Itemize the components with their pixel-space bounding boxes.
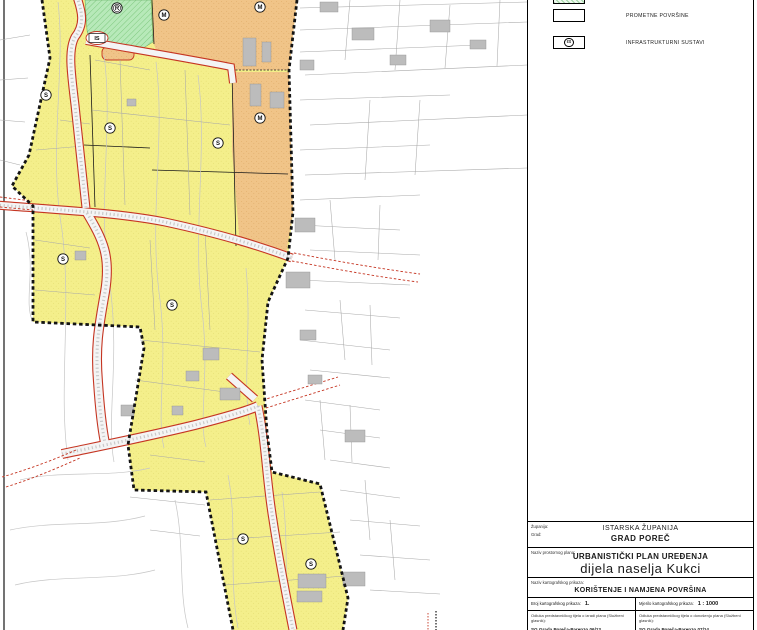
county-label: Županija: xyxy=(531,524,548,529)
legend-swatch-hatched xyxy=(553,0,585,4)
city-label: Grad: xyxy=(531,532,548,537)
svg-text:S: S xyxy=(61,257,65,263)
svg-text:R: R xyxy=(115,6,120,12)
title-block-row-number-scale: Broj kartografskog prikaza:1. Mjerilo ka… xyxy=(528,598,753,611)
plan-name-label: Naziv prostornog plana: xyxy=(531,550,575,555)
legend-item-cutoff xyxy=(553,0,585,4)
zone-label-S: S xyxy=(105,123,115,133)
scale-value: 1 : 1000 xyxy=(698,601,719,607)
legend-panel: PROMETNE POVRŠINE IS INFRASTRUKTURNI SUS… xyxy=(527,0,754,630)
title-block-row-county: Županija: Grad: ISTARSKA ŽUPANIJA GRAD P… xyxy=(528,522,753,548)
zone-label-S: S xyxy=(167,300,177,310)
sheet-number-value: 1. xyxy=(585,601,590,607)
plan-sheet: SSSSSSSMMMR IS PROMETNE POVRŠINE IS INFR… xyxy=(0,0,757,630)
legend-label: PROMETNE POVRŠINE xyxy=(626,13,689,19)
zone-label-R: R xyxy=(112,3,122,13)
zoning-map: SSSSSSSMMMR IS xyxy=(0,0,527,630)
zone-label-M: M xyxy=(255,113,265,123)
decision-draft-label: Odluka predstavničkog tijela o izradi pl… xyxy=(531,613,633,623)
zone-label-S: S xyxy=(306,559,316,569)
legend-item-roads: PROMETNE POVRŠINE xyxy=(553,9,585,22)
legend-swatch-infrastructure: IS xyxy=(553,36,585,49)
svg-text:S: S xyxy=(44,93,48,99)
svg-text:S: S xyxy=(216,141,220,147)
zone-label-S: S xyxy=(213,138,223,148)
svg-text:S: S xyxy=(108,126,112,132)
legend-swatch-road xyxy=(553,9,585,22)
scale-label: Mjerilo kartografskog prikaza: xyxy=(639,601,694,606)
plan-name-line2: dijela naselja Kukci xyxy=(528,561,753,576)
title-block: Županija: Grad: ISTARSKA ŽUPANIJA GRAD P… xyxy=(528,521,753,630)
sheet-name-label: Naziv kartografskog prikaza: xyxy=(531,580,584,585)
svg-text:S: S xyxy=(241,537,245,543)
is-symbol-icon: IS xyxy=(564,38,574,48)
title-block-row-plan: Naziv prostornog plana: URBANISTIČKI PLA… xyxy=(528,548,753,578)
sheet-number-label: Broj kartografskog prikaza: xyxy=(531,601,581,606)
title-block-row-decisions: Odluka predstavničkog tijela o izradi pl… xyxy=(528,611,753,630)
zone-label-M: M xyxy=(255,2,265,12)
svg-text:M: M xyxy=(258,116,263,122)
svg-text:S: S xyxy=(170,303,174,309)
city-value: GRAD POREČ xyxy=(528,532,753,543)
decision-adoption-label: Odluka predstavničkog tijela o donošenju… xyxy=(639,613,751,623)
zone-label-M: M xyxy=(159,10,169,20)
is-marker: IS xyxy=(86,32,108,45)
svg-text:S: S xyxy=(309,562,313,568)
legend-item-infrastructure: IS INFRASTRUKTURNI SUSTAVI xyxy=(553,36,585,49)
svg-text:M: M xyxy=(258,5,263,11)
title-block-row-sheet: Naziv kartografskog prikaza: KORIŠTENJE … xyxy=(528,578,753,598)
zone-label-S: S xyxy=(238,534,248,544)
svg-text:IS: IS xyxy=(94,36,100,42)
svg-text:M: M xyxy=(162,13,167,19)
county-value: ISTARSKA ŽUPANIJA xyxy=(528,522,753,532)
zone-label-S: S xyxy=(58,254,68,264)
legend-label: INFRASTRUKTURNI SUSTAVI xyxy=(626,40,705,46)
zone-label-S: S xyxy=(41,90,51,100)
